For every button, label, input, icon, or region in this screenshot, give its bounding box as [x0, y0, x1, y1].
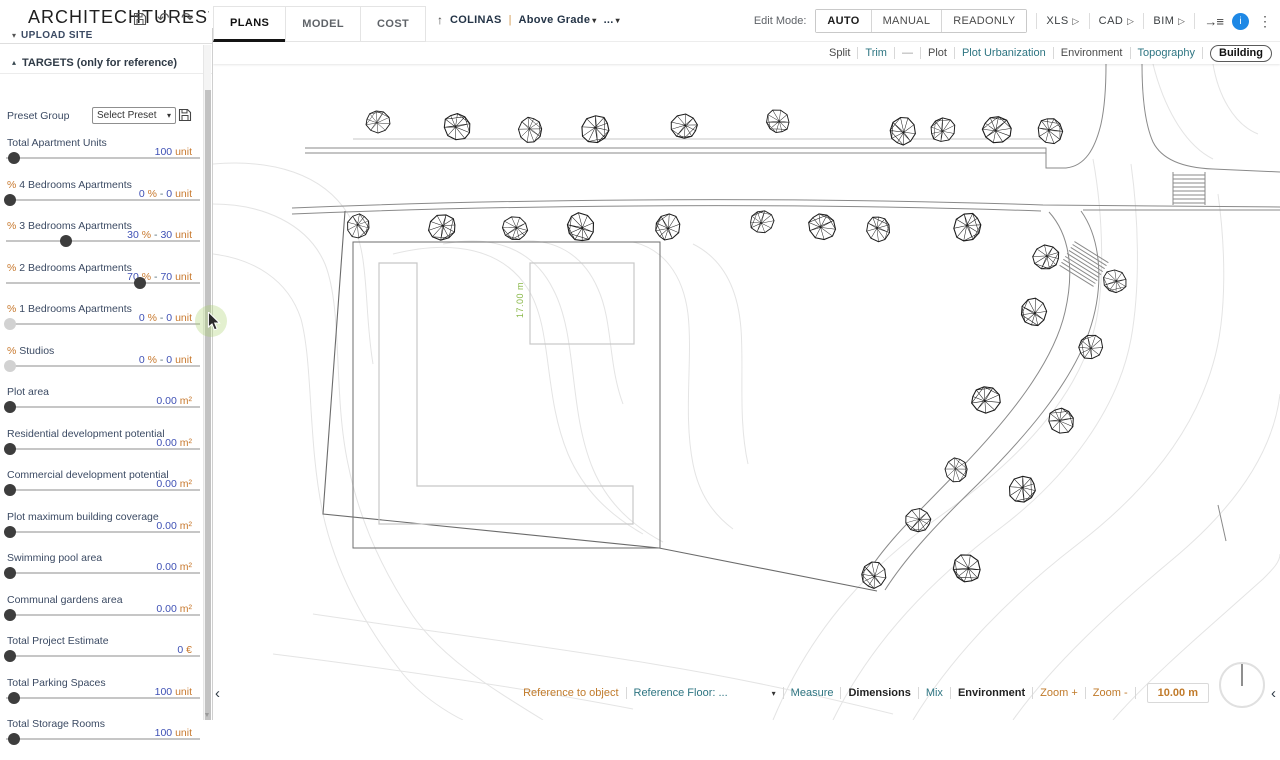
- tab-model[interactable]: MODEL: [285, 6, 361, 42]
- cad-export-button[interactable]: CAD ▷: [1099, 15, 1135, 27]
- open-panel-icon[interactable]: →≡: [1204, 14, 1223, 29]
- divider: [920, 47, 921, 59]
- slider-row: % 4 Bedrooms Apartments0 % - 0 unit: [0, 179, 205, 221]
- preset-group-label: Preset Group: [7, 110, 69, 122]
- layer-plot-urbanization[interactable]: Plot Urbanization: [962, 47, 1046, 59]
- edit-mode-readonly[interactable]: READONLY: [942, 10, 1026, 32]
- divider: [626, 687, 627, 699]
- divider: [918, 687, 919, 699]
- targets-sidebar: ▾ UPLOAD SITE ▴ TARGETS (only for refere…: [0, 28, 213, 720]
- slider-thumb[interactable]: [4, 194, 16, 206]
- divider: [950, 687, 951, 699]
- slider-track[interactable]: [6, 199, 200, 201]
- slider-label: % 3 Bedrooms Apartments: [7, 220, 132, 232]
- edit-mode-label: Edit Mode:: [754, 15, 807, 27]
- chevron-up-icon: ▴: [12, 58, 16, 67]
- divider: [840, 687, 841, 699]
- slider-track[interactable]: [6, 157, 200, 159]
- slider-thumb[interactable]: [4, 526, 16, 538]
- export-triangle-icon: ▷: [1127, 16, 1134, 26]
- layer-trim[interactable]: Trim: [865, 47, 887, 59]
- slider-track[interactable]: [6, 489, 200, 491]
- layer-split[interactable]: Split: [829, 47, 850, 59]
- slider-thumb[interactable]: [134, 277, 146, 289]
- tree-symbol: [804, 209, 841, 245]
- topography-contours: [213, 64, 1280, 720]
- building-footprint[interactable]: [353, 242, 660, 548]
- tree-symbol: [1031, 243, 1060, 270]
- chevron-down-icon: ▾: [592, 16, 596, 25]
- sidebar-collapse-button[interactable]: ‹: [215, 685, 220, 702]
- slider-track[interactable]: [6, 531, 200, 533]
- slider-track[interactable]: [6, 240, 200, 242]
- slider-row: % 2 Bedrooms Apartments70 % - 70 unit: [0, 262, 205, 304]
- slider-track[interactable]: [6, 365, 200, 367]
- tree-symbol: [1074, 330, 1108, 364]
- slider-thumb[interactable]: [8, 692, 20, 704]
- view-tabs: PLANSMODELCOST: [213, 6, 425, 42]
- tree-symbol: [366, 111, 390, 133]
- divider: [1130, 47, 1131, 59]
- tree-symbol: [971, 387, 1000, 414]
- slider-row: Total Storage Rooms100 unit: [0, 718, 205, 760]
- kebab-menu-icon[interactable]: ⋮: [1258, 13, 1272, 30]
- redo-icon[interactable]: ↷: [181, 11, 194, 26]
- slider-label: Residential development potential: [7, 428, 165, 440]
- bottom-mix[interactable]: Mix: [926, 687, 943, 699]
- tree-symbol: [1003, 471, 1040, 508]
- slider-track[interactable]: [6, 614, 200, 616]
- bottom-reference-floor[interactable]: Reference Floor: ...: [634, 687, 728, 699]
- slider-row: Residential development potential0.00 m²: [0, 428, 205, 470]
- tree-symbol: [344, 211, 373, 241]
- save-icon[interactable]: [133, 12, 147, 26]
- slider-row: Communal gardens area0.00 m²: [0, 594, 205, 636]
- tree-symbol: [859, 559, 889, 590]
- slider-label: Swimming pool area: [7, 552, 102, 564]
- tree-symbol: [944, 457, 968, 483]
- layer-topography[interactable]: Topography: [1138, 47, 1196, 59]
- slider-label: Total Apartment Units: [7, 137, 107, 149]
- slider-label: % 1 Bedrooms Apartments: [7, 303, 132, 315]
- slider-row: % 3 Bedrooms Apartments30 % - 30 unit: [0, 220, 205, 262]
- slider-label: Plot area: [7, 386, 49, 398]
- slider-thumb[interactable]: [8, 733, 20, 745]
- slider-label: Communal gardens area: [7, 594, 123, 606]
- layer-building[interactable]: Building: [1210, 45, 1272, 62]
- chevron-down-icon: ▾: [167, 111, 171, 120]
- slider-thumb[interactable]: [60, 235, 72, 247]
- edit-mode-manual[interactable]: MANUAL: [872, 10, 943, 32]
- undo-icon[interactable]: ↶: [157, 11, 170, 26]
- bottom-reference-to-object[interactable]: Reference to object: [523, 687, 618, 699]
- scrollbar-thumb[interactable]: [205, 90, 211, 720]
- bottom-environment[interactable]: Environment: [958, 687, 1025, 699]
- upload-arrow-icon[interactable]: ↑: [437, 13, 443, 27]
- tree-symbol: [1021, 298, 1048, 327]
- upload-site-section[interactable]: ▾ UPLOAD SITE: [0, 28, 212, 44]
- roads: [292, 64, 1280, 590]
- user-avatar[interactable]: i: [1232, 13, 1249, 30]
- slider-track[interactable]: [6, 282, 200, 284]
- divider: [1032, 687, 1033, 699]
- bim-export-button[interactable]: BIM ▷: [1153, 15, 1185, 27]
- slider-thumb[interactable]: [4, 567, 16, 579]
- layer--: —: [902, 47, 913, 59]
- tree-symbol: [669, 112, 698, 140]
- slider-thumb[interactable]: [8, 152, 20, 164]
- divider: [1194, 13, 1195, 29]
- tree-symbol: [438, 108, 475, 145]
- slider-row: Plot area0.00 m²: [0, 386, 205, 428]
- slider-thumb[interactable]: [4, 650, 16, 662]
- divider: [1202, 47, 1203, 59]
- tree-symbol: [651, 210, 685, 245]
- layers-toolbar: SplitTrim—PlotPlot UrbanizationEnvironme…: [213, 42, 1280, 64]
- tree-symbol: [499, 212, 531, 243]
- divider: [1143, 13, 1144, 29]
- chevron-down-icon: ▾: [12, 31, 16, 40]
- target-sliders: Total Apartment Units100 unit% 4 Bedroom…: [0, 137, 205, 760]
- compass-north-indicator[interactable]: [1219, 662, 1265, 708]
- site-plan-canvas[interactable]: 17.00 m: [213, 64, 1280, 720]
- tree-symbol: [948, 549, 986, 587]
- dimension-label: 17.00 m: [515, 282, 525, 318]
- slider-track[interactable]: [6, 572, 200, 574]
- slider-track[interactable]: [6, 697, 200, 699]
- chevron-down-icon: ▾: [772, 689, 776, 698]
- edit-mode-auto[interactable]: AUTO: [816, 10, 871, 32]
- preset-group-row: Preset Group Select Preset ▾: [0, 106, 205, 126]
- slider-thumb[interactable]: [4, 318, 16, 330]
- tree-symbol: [904, 507, 932, 534]
- slider-row: % Studios0 % - 0 unit: [0, 345, 205, 387]
- slider-thumb[interactable]: [4, 609, 16, 621]
- slider-thumb[interactable]: [4, 401, 16, 413]
- slider-row: Total Project Estimate0 €: [0, 635, 205, 677]
- slider-thumb[interactable]: [4, 484, 16, 496]
- divider: [1053, 47, 1054, 59]
- tree-symbol: [864, 214, 892, 243]
- slider-label: Commercial development potential: [7, 469, 169, 481]
- slider-label: % Studios: [7, 345, 54, 357]
- slider-thumb[interactable]: [4, 360, 16, 372]
- tree-symbol: [424, 210, 459, 244]
- tab-plans[interactable]: PLANS: [213, 6, 286, 42]
- bottom-dimensions[interactable]: Dimensions: [848, 687, 910, 699]
- slider-row: % 1 Bedrooms Apartments0 % - 0 unit: [0, 303, 205, 345]
- project-separator: |: [509, 14, 512, 26]
- slider-thumb[interactable]: [4, 443, 16, 455]
- tree-symbol: [888, 115, 918, 147]
- compass-needle: [1241, 664, 1243, 686]
- divider: [954, 47, 955, 59]
- edit-mode-toggle: AUTOMANUALREADONLY: [815, 9, 1027, 33]
- targets-section-header[interactable]: ▴ TARGETS (only for reference): [0, 52, 212, 74]
- sidebar-scrollbar[interactable]: [203, 45, 211, 720]
- tree-symbol: [1099, 265, 1132, 297]
- slider-row: Total Apartment Units100 unit: [0, 137, 205, 179]
- divider: [783, 687, 784, 699]
- bottom-measure[interactable]: Measure: [791, 687, 834, 699]
- slider-row: Swimming pool area0.00 m²: [0, 552, 205, 594]
- tree-symbol: [1033, 114, 1067, 148]
- bottom-zoom[interactable]: Zoom -: [1093, 687, 1128, 699]
- slider-track[interactable]: [6, 406, 200, 408]
- preset-select[interactable]: Select Preset ▾: [92, 107, 176, 124]
- level-selector[interactable]: Above Grade▾: [518, 14, 596, 26]
- crosswalk-vertical: [1173, 172, 1205, 205]
- mouse-cursor: [205, 312, 223, 337]
- preset-save-icon[interactable]: [178, 108, 192, 127]
- layer-plot[interactable]: Plot: [928, 47, 947, 59]
- divider: [1085, 687, 1086, 699]
- slider-track[interactable]: [6, 738, 200, 740]
- tree-symbol: [762, 105, 794, 137]
- project-name[interactable]: COLINAS: [450, 14, 502, 26]
- layer-environment[interactable]: Environment: [1061, 47, 1123, 59]
- more-selector[interactable]: ...▾: [604, 14, 620, 26]
- slider-label: Total Parking Spaces: [7, 677, 106, 689]
- right-panel-collapse-button[interactable]: ‹: [1271, 685, 1276, 702]
- bottom-zoom-+[interactable]: Zoom +: [1040, 687, 1078, 699]
- plot-boundary[interactable]: [323, 211, 877, 591]
- slider-label: % 4 Bedrooms Apartments: [7, 179, 132, 191]
- tree-symbol: [1043, 403, 1079, 439]
- slider-label: % 2 Bedrooms Apartments: [7, 262, 132, 274]
- tree-symbol: [948, 208, 986, 247]
- tree-symbol: [980, 113, 1015, 146]
- tree-symbol: [748, 208, 777, 236]
- slider-track[interactable]: [6, 323, 200, 325]
- tree-symbol: [926, 114, 959, 147]
- slider-track[interactable]: [6, 448, 200, 450]
- scroll-down-icon[interactable]: ▼: [203, 712, 211, 719]
- tab-cost[interactable]: COST: [360, 6, 426, 42]
- divider: [1036, 13, 1037, 29]
- header-right-group: Edit Mode: AUTOMANUALREADONLY XLS ▷ CAD …: [754, 8, 1272, 34]
- xls-export-button[interactable]: XLS ▷: [1046, 15, 1079, 27]
- tree-symbol: [564, 209, 598, 245]
- slider-row: Commercial development potential0.00 m²: [0, 469, 205, 511]
- scale-value-box[interactable]: 10.00 m: [1147, 683, 1209, 703]
- slider-track[interactable]: [6, 655, 200, 657]
- bottom-toolbar: Reference to objectReference Floor: ...▾…: [213, 678, 1280, 708]
- slider-label: Total Project Estimate: [7, 635, 109, 647]
- export-triangle-icon: ▷: [1072, 16, 1079, 26]
- slider-row: Plot maximum building coverage0.00 m²: [0, 511, 205, 553]
- project-bar: ↑ COLINAS | Above Grade▾ ...▾: [437, 13, 620, 27]
- divider: [1089, 13, 1090, 29]
- divider: [857, 47, 858, 59]
- divider: [894, 47, 895, 59]
- slider-label: Plot maximum building coverage: [7, 511, 159, 523]
- slider-row: Total Parking Spaces100 unit: [0, 677, 205, 719]
- tree-symbol: [576, 110, 615, 149]
- chevron-down-icon: ▾: [616, 16, 620, 25]
- export-triangle-icon: ▷: [1178, 16, 1185, 26]
- divider: [1135, 687, 1136, 699]
